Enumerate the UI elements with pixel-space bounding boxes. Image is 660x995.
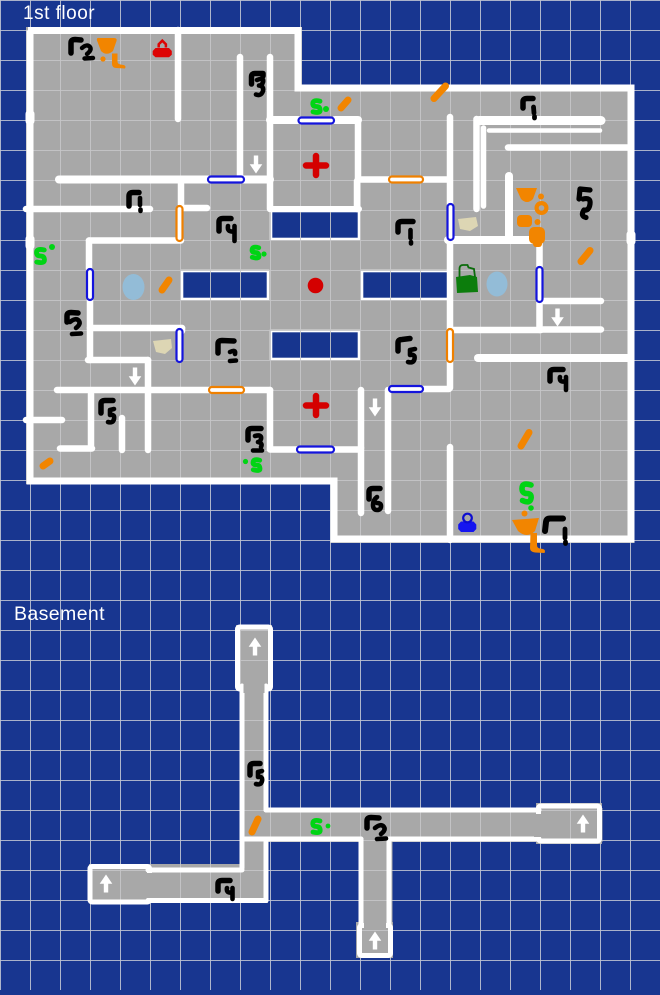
svg-text:Basement: Basement	[14, 603, 105, 625]
svg-text:1st floor: 1st floor	[23, 3, 95, 24]
